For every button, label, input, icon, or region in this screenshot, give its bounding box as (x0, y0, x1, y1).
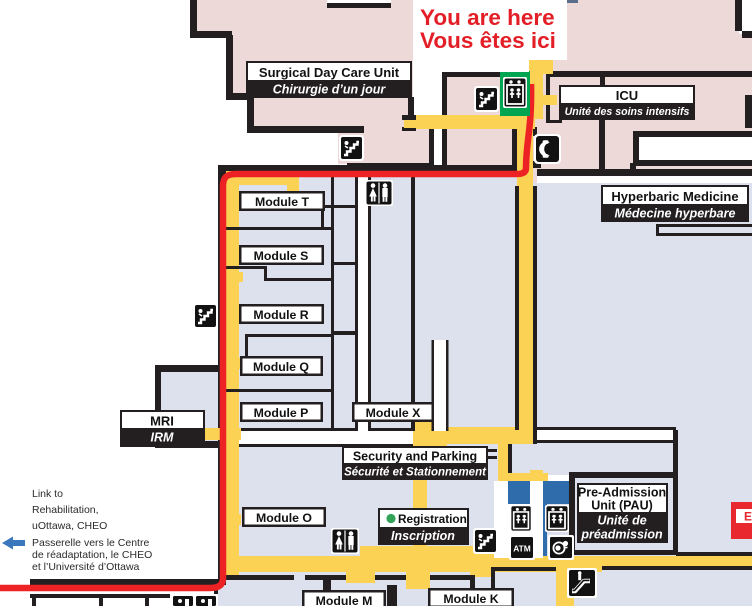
svg-text:Rehabilitation,: Rehabilitation, (32, 504, 99, 516)
svg-text:Vous êtes ici: Vous êtes ici (420, 28, 556, 53)
svg-text:Security and Parking: Security and Parking (353, 450, 477, 464)
svg-text:Sécurité et Stationnement: Sécurité et Stationnement (344, 467, 487, 479)
svg-text:Surgical Day Care Unit: Surgical Day Care Unit (259, 65, 400, 80)
svg-text:préadmission: préadmission (580, 528, 663, 542)
svg-text:Unité des soins intensifs: Unité des soins intensifs (565, 106, 690, 118)
svg-text:Module T: Module T (255, 195, 309, 209)
svg-text:Pre-Admission: Pre-Admission (578, 486, 666, 500)
svg-text:Module P: Module P (254, 406, 309, 420)
svg-text:You are here: You are here (420, 5, 555, 30)
svg-text:Registration: Registration (398, 512, 467, 526)
svg-text:Inscription: Inscription (391, 529, 455, 543)
svg-text:Module Q: Module Q (253, 360, 309, 374)
svg-text:Module O: Module O (256, 511, 312, 525)
svg-text:Chirurgie d’un jour: Chirurgie d’un jour (273, 83, 387, 97)
svg-text:Link to: Link to (32, 488, 63, 500)
svg-text:Unit (PAU): Unit (PAU) (591, 499, 653, 513)
svg-text:Hyperbaric Medicine: Hyperbaric Medicine (611, 189, 738, 204)
svg-text:Unité de: Unité de (597, 514, 646, 528)
svg-text:Module K: Module K (443, 592, 498, 606)
svg-text:de réadaptation, le CHEO: de réadaptation, le CHEO (32, 549, 152, 561)
svg-text:IRM: IRM (151, 431, 175, 445)
svg-text:Module R: Module R (253, 308, 308, 322)
svg-text:Module X: Module X (366, 406, 421, 420)
svg-text:Passerelle vers le Centre: Passerelle vers le Centre (32, 537, 149, 549)
svg-text:Médecine hyperbare: Médecine hyperbare (615, 207, 736, 221)
svg-text:Module M: Module M (316, 594, 373, 606)
svg-text:uOttawa, CHEO: uOttawa, CHEO (32, 520, 107, 532)
svg-text:MRI: MRI (150, 414, 174, 429)
svg-text:E: E (744, 510, 752, 524)
svg-text:Module S: Module S (254, 249, 309, 263)
svg-text:ICU: ICU (616, 88, 638, 103)
svg-text:et l’Université d’Ottawa: et l’Université d’Ottawa (32, 561, 140, 573)
